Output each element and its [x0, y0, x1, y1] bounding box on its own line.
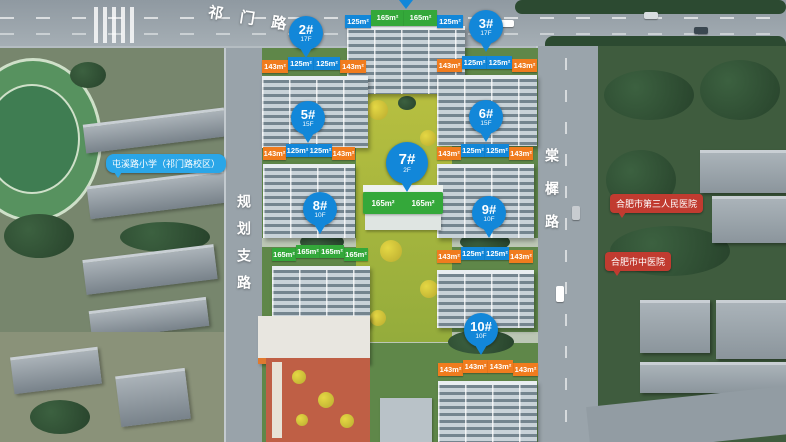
lane-marking — [565, 58, 567, 438]
pin-number: 10# — [470, 320, 492, 333]
hospital-building — [712, 196, 786, 243]
road-name-right: 棠樨路 — [542, 148, 562, 247]
building-8-unit-strip: 165m² 165m² 165m² 165m² — [272, 248, 368, 261]
pin-floors: 17F — [300, 37, 311, 44]
pin-number: 8# — [313, 199, 327, 212]
unit-size-tag: 165m² — [371, 10, 404, 26]
building-9-unit-strip: 143m² 125m² 125m² 143m² — [437, 250, 533, 263]
unit-size-tag: 143m² — [509, 147, 533, 160]
unit-size-tag: 125m² — [461, 247, 485, 260]
crosswalk — [94, 7, 138, 43]
yellow-tree — [420, 280, 438, 298]
yellow-tree — [368, 100, 388, 120]
pin-floors: 15F — [302, 122, 313, 129]
pin-tail-icon — [314, 224, 326, 234]
unit-size-tag: 165m² — [404, 10, 437, 26]
tree — [70, 62, 106, 88]
poi-label-school[interactable]: 屯溪路小学（祁门路校区） — [106, 154, 226, 173]
unit-size-tag: 143m² — [513, 363, 538, 376]
pin-tail-icon — [483, 228, 495, 238]
unit-size-tag: 143m² — [437, 147, 461, 160]
unit-size-tag: 125m² — [485, 247, 509, 260]
unit-size-tag: 125m² — [314, 57, 340, 70]
building-8-pin[interactable]: 8# 10F — [300, 192, 340, 234]
tree — [4, 214, 74, 258]
pin-balloon-icon: 5# 15F — [291, 101, 325, 135]
unit-size-tag: 165m² — [272, 248, 296, 261]
unit-size-tag: 143m² — [512, 59, 537, 72]
unit-size-tag: 125m² — [437, 15, 463, 28]
pin-number: 6# — [479, 107, 493, 120]
kindergarten-building — [258, 316, 370, 364]
unit-size-tag: 143m² — [263, 147, 286, 160]
pin-balloon-icon: 2# 17F — [289, 16, 323, 50]
unit-size-tag: 125m² — [485, 144, 509, 157]
unit-size-tag: 165m² — [344, 248, 368, 261]
building-block — [115, 368, 191, 427]
car — [572, 206, 580, 220]
pin-number: 2# — [299, 23, 313, 36]
building-5-unit-strip: 143m² 125m² 125m² 143m² — [263, 147, 355, 160]
unit-size-tag: 125m² — [309, 144, 332, 157]
building-10-pin[interactable]: 10# 10F — [461, 313, 501, 355]
pin-floors: 17F — [480, 31, 491, 38]
pin-floors: 15F — [480, 121, 491, 128]
pin-number: 9# — [482, 203, 496, 216]
building-2-pin[interactable]: 2# 17F — [286, 16, 326, 58]
pin-number: 3# — [479, 17, 493, 30]
road-name-left: 规划支路 — [234, 194, 254, 302]
pin-number: 7# — [399, 152, 416, 167]
residential-building-7 — [365, 214, 441, 230]
pin-floors: 10F — [483, 217, 494, 224]
car — [694, 27, 708, 34]
hospital-building — [716, 300, 786, 359]
unit-size-tag: 143m² — [488, 360, 513, 373]
pin-tail-icon — [300, 48, 312, 58]
unit-size-tag: 165m² — [296, 245, 320, 258]
building-9-pin[interactable]: 9# 10F — [469, 196, 509, 238]
yellow-tree — [380, 240, 402, 262]
pin-number: 5# — [301, 108, 315, 121]
unit-size-tag: 125m² — [462, 56, 487, 69]
car — [556, 286, 564, 302]
yellow-tree — [318, 392, 334, 408]
yellow-tree — [292, 370, 306, 384]
pin-balloon-icon: 3# 17F — [469, 10, 503, 44]
pin-tail-icon — [480, 132, 492, 142]
pin-tail-icon — [401, 182, 413, 192]
pin-balloon-icon: 6# 15F — [469, 100, 503, 134]
residential-tower-10 — [438, 381, 537, 442]
unit-size-tag: 143m² — [438, 363, 463, 376]
unit-size-tag: 143m² — [437, 59, 462, 72]
building-block — [380, 398, 432, 442]
unit-size-tag: 143m² — [332, 147, 355, 160]
unit-size-tag: 165m² — [320, 245, 344, 258]
unit-size-tag: 143m² — [437, 250, 461, 263]
unit-size-tag: 143m² — [509, 250, 533, 263]
building-pin-partial-icon — [399, 0, 413, 9]
pin-tail-icon — [480, 42, 492, 52]
unit-size-tag: 125m² — [345, 15, 371, 28]
pin-balloon-icon: 10# 10F — [464, 313, 498, 347]
kindergarten-path — [272, 362, 282, 438]
car — [644, 12, 658, 19]
building-5-pin[interactable]: 5# 15F — [288, 101, 328, 143]
building-3-pin[interactable]: 3# 17F — [466, 10, 506, 52]
unit-size-tag: 165m² — [371, 199, 394, 208]
tree — [398, 96, 416, 110]
building-10-unit-strip: 143m² 143m² 143m² 143m² — [438, 363, 538, 376]
poi-label-hospital-1[interactable]: 合肥市第三人民医院 — [610, 194, 703, 213]
hospital-building — [640, 300, 710, 353]
pin-balloon-icon: 8# 10F — [303, 192, 337, 226]
building-6-pin[interactable]: 6# 15F — [466, 100, 506, 142]
poi-label-hospital-2[interactable]: 合肥市中医院 — [605, 252, 671, 271]
yellow-tree — [296, 414, 308, 426]
site-plan-map: 祁门路 规划支路 棠樨路 125m² 165m² 165m² 125m² 143… — [0, 0, 786, 442]
unit-size-tag: 143m² — [262, 60, 288, 73]
tree — [604, 70, 694, 120]
unit-size-tag: 125m² — [461, 144, 485, 157]
pin-floors: 2F — [403, 168, 411, 175]
unit-size-tag: 125m² — [288, 57, 314, 70]
hospital-building — [700, 150, 786, 193]
unit-size-tag: 143m² — [463, 360, 488, 373]
unit-size-tag: 125m² — [286, 144, 309, 157]
building-7-unit-strip: 165m² 165m² — [363, 192, 443, 214]
yellow-tree — [370, 310, 386, 326]
pin-balloon-icon: 7# 2F — [386, 142, 428, 184]
unit-size-tag: 165m² — [411, 199, 434, 208]
building-2-unit-strip: 143m² 125m² 125m² 143m² — [262, 60, 366, 73]
pin-tail-icon — [302, 133, 314, 143]
pin-tail-icon — [475, 345, 487, 355]
unit-size-tag: 125m² — [487, 56, 512, 69]
yellow-tree — [340, 414, 354, 428]
building-top-unit-strip: 125m² 165m² 165m² 125m² — [345, 12, 463, 28]
pin-floors: 10F — [475, 334, 486, 341]
tree — [700, 60, 780, 120]
building-7-pin[interactable]: 7# 2F — [387, 142, 427, 192]
pin-balloon-icon: 9# 10F — [472, 196, 506, 230]
tree — [30, 400, 90, 434]
building-3-unit-strip: 143m² 125m² 125m² 143m² — [437, 59, 537, 72]
building-6-unit-strip: 143m² 125m² 125m² 143m² — [437, 147, 533, 160]
unit-size-tag: 143m² — [340, 60, 366, 73]
pin-floors: 10F — [314, 213, 325, 220]
